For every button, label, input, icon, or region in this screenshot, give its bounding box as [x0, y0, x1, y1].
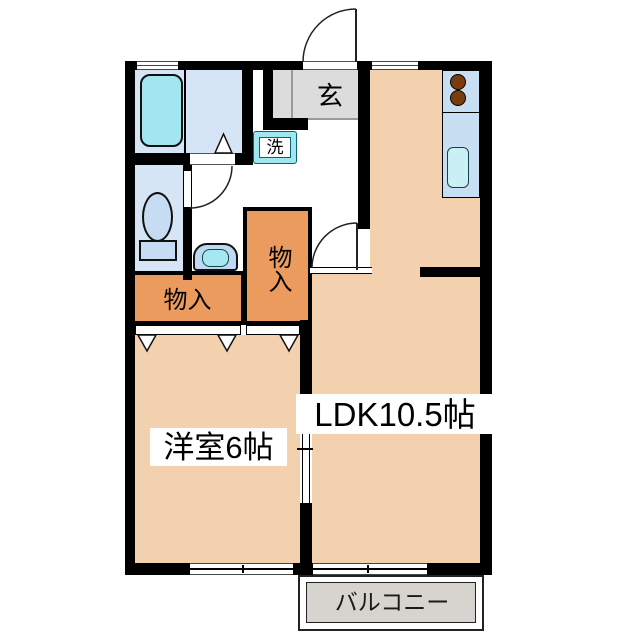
balcony-label-text: バルコニー — [335, 591, 450, 614]
balcony-label: バルコニー — [318, 589, 466, 615]
ldk-door-arc — [312, 223, 357, 268]
bathroom-folding-door-marker — [215, 134, 232, 153]
closet-horizontal-label-text: 物入 — [164, 289, 212, 313]
entrance-door-arc — [303, 9, 356, 62]
western-room-label-text: 洋室6帖 — [163, 432, 273, 463]
closet-door-marker-3 — [280, 335, 298, 351]
closet-vertical-label: 物入 — [263, 238, 291, 300]
entrance-label-text: 玄 — [317, 83, 343, 109]
floorplan-canvas: 洗 玄 — [0, 0, 640, 640]
closet-door-marker-1 — [138, 335, 156, 351]
washroom-door-arc — [190, 166, 232, 208]
western-room-label: 洋室6帖 — [150, 428, 287, 466]
entrance-label: 玄 — [310, 81, 350, 111]
ldk-label-text: LDK10.5帖 — [314, 398, 475, 431]
closet-horizontal-label: 物入 — [135, 287, 240, 315]
ldk-label: LDK10.5帖 — [296, 394, 494, 434]
closet-door-marker-2 — [218, 335, 236, 351]
closet-vertical-label-text: 物入 — [265, 245, 289, 293]
